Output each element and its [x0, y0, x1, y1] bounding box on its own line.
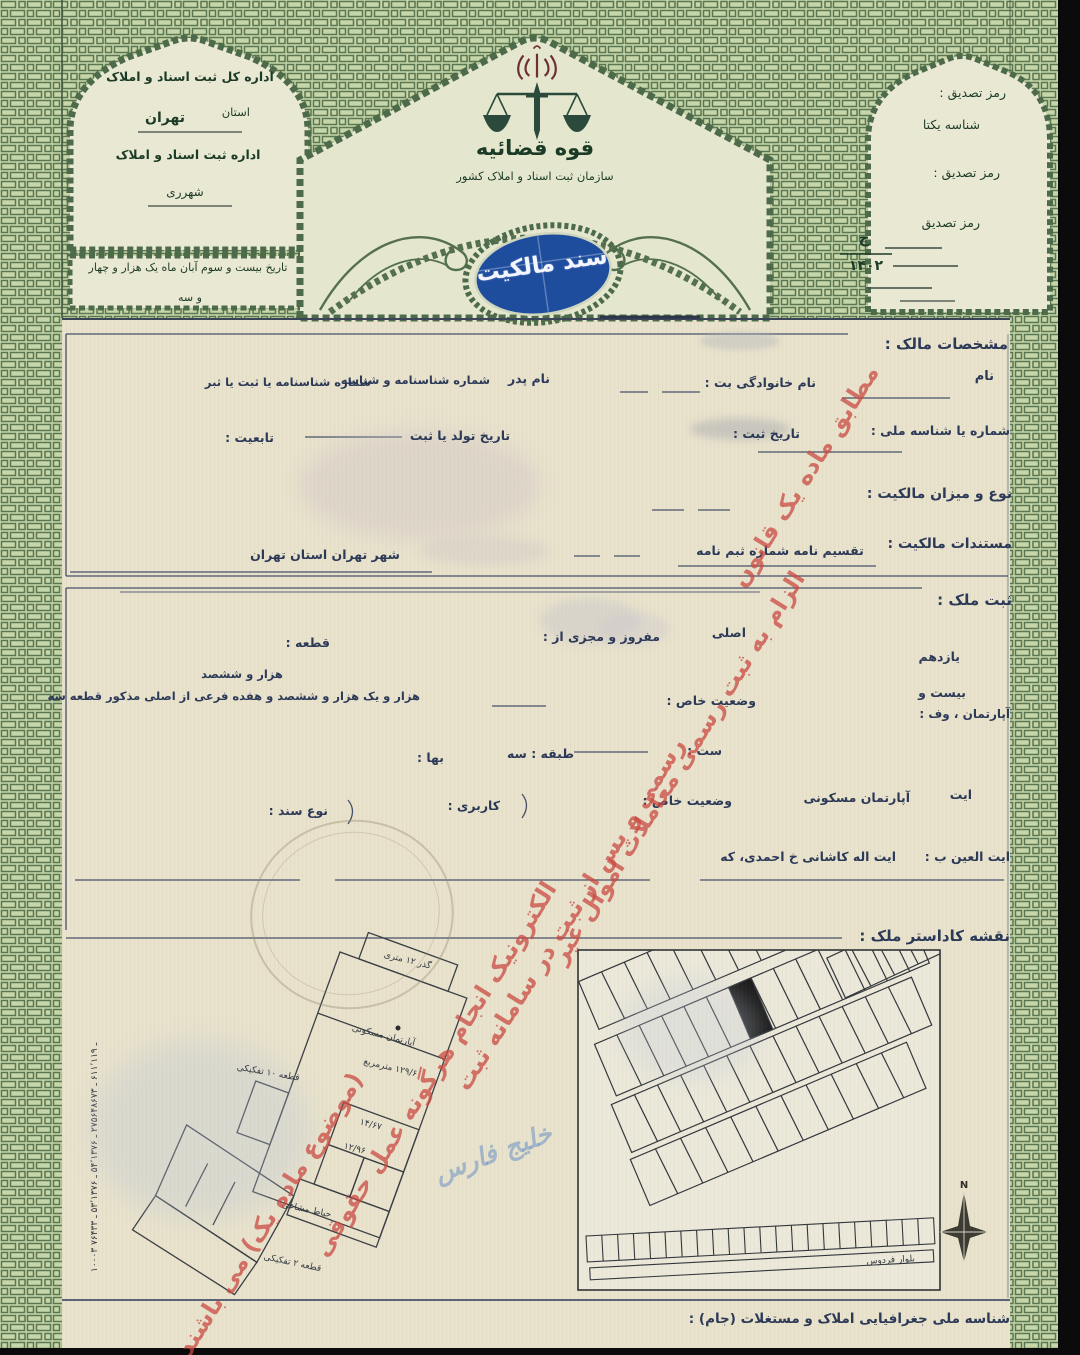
twenty-and: بیست و	[906, 686, 966, 700]
address-value: ایت اله کاشانی خ احمدی، که	[718, 850, 896, 864]
price-label: بها :	[400, 751, 444, 765]
nationality-label: تابعیت :	[210, 431, 274, 445]
deed-document-photo: ۱۰۰۰۳ ـ ۶۱۱٬۱۱۹ ـ ۲۷۵۶۴۸۶۷۳ ـ ۵۴٬۱۳۷۶ ـ …	[0, 0, 1080, 1355]
verify-code-3-label: رمز تصدیق	[872, 216, 980, 230]
owner-name-label: نام	[948, 370, 994, 385]
site-plan-side-numbers: ۱۰۰۰۳ ـ ۶۱۱٬۱۱۹ ـ ۲۷۵۶۴۸۶۷۳ ـ ۵۴٬۱۳۷۶ ـ …	[90, 1042, 100, 1272]
left-box-district: شهرری	[140, 186, 230, 200]
it-label: ایت	[932, 788, 972, 802]
left-box-department: اداره کل ثبت اسناد و املاک	[78, 70, 302, 84]
owner-id2-label: شماره شناسنامه یا ثبت یا ثبر	[202, 376, 374, 389]
issue-date-line1: تاریخ بیست و سوم آبان ماه یک هزار و چهار	[74, 262, 302, 275]
separated-from-label: مفروز و مجزی از :	[514, 630, 660, 644]
verify-code-1-label: رمز تصدیق :	[888, 86, 1006, 100]
unique-id-label: شناسه یکتا	[868, 118, 980, 132]
ownership-type-label: نوع و میزان مالکیت :	[866, 486, 1012, 502]
national-id-label: شماره یا شناسه ملی :	[902, 424, 1010, 438]
address-label: ایت العین ب :	[900, 850, 1010, 864]
district-eleven: یازدهم	[892, 650, 960, 664]
compass-n-label: N	[954, 1180, 974, 1192]
birth-date-label: تاریخ تولد یا ثبت	[404, 429, 516, 443]
ownership-docs-label: مستندات مالکیت :	[872, 536, 1012, 552]
judiciary-title: قوه قضائیه	[465, 136, 605, 160]
reg-date-label: تاریخ ثبت :	[712, 427, 800, 441]
issue-date-line2: و سه	[160, 292, 220, 305]
deed-type-label: نوع سند :	[244, 804, 328, 818]
registration-organization: سازمان ثبت اسناد و املاک کشور	[448, 170, 622, 183]
plot-label: قطعه :	[276, 636, 330, 650]
ownership-docs-value: تقسیم نامه شماره ثبم نامه	[682, 544, 878, 558]
verify-code-2-label: رمز تصدیق :	[882, 166, 1000, 180]
left-box-office: اداره ثبت اسناد و املاک	[88, 148, 288, 162]
left-box-province: تهران	[120, 110, 210, 126]
parcel-description: هزار و یک هزار و ششصد و هفده فرعی از اصل…	[70, 690, 420, 703]
map-section-title: نقشه کاداستر ملک :	[848, 928, 1010, 945]
owner-id1-label: شماره شناسنامه و شناسه	[372, 374, 490, 387]
owner-father-label: نام پدر	[488, 372, 550, 386]
property-section-title: ثبت ملک :	[928, 592, 1012, 609]
thousand-note: هزار و ششصد	[182, 668, 302, 681]
apartment-label: آپارتمان ، وف :	[888, 708, 1010, 722]
series-year: ۱۴۰۲	[842, 258, 890, 274]
floor-label: طبقه : سه	[486, 747, 574, 761]
owner-family-label: نام خانوادگی بت :	[708, 376, 816, 390]
series-letter: ج	[852, 230, 876, 247]
jam-id-label: شناسه ملی جغرافیایی املاک و مستغلات (جام…	[638, 1312, 1010, 1328]
ownership-docs-city: شهر تهران استان تهران	[225, 548, 425, 562]
residential-apartment: آپارتمان مسکونی	[772, 791, 910, 805]
usage-label: کاربری :	[420, 799, 500, 813]
main-parcel-label: اصلی	[698, 626, 746, 640]
